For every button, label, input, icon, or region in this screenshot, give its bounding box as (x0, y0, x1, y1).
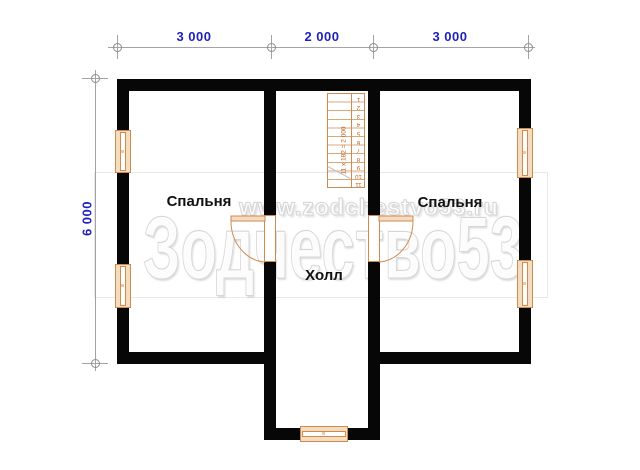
room-label-bedroom-right: Спальня (395, 194, 505, 211)
dimension-label-height: 6 000 (80, 179, 95, 259)
door-bedroom-right (369, 216, 414, 263)
left-dimension-line (95, 70, 96, 371)
axis-marker-circle (91, 359, 100, 368)
room-label-hall: Холл (274, 267, 374, 284)
top-dimension-line (108, 47, 535, 48)
door-frame (369, 216, 380, 262)
dimension-label-span3: 3 000 (420, 29, 480, 44)
dimension-label-span2: 2 000 (292, 29, 352, 44)
door-layer (0, 0, 640, 470)
axis-marker-circle (267, 43, 276, 52)
room-label-bedroom-left: Спальня (144, 193, 254, 210)
door-bedroom-left (231, 216, 276, 263)
axis-marker-circle (113, 43, 122, 52)
floor-plan-canvas: 3 000 2 000 3 000 6 000 www.zodchestvo53… (0, 0, 640, 470)
door-swing-arc (231, 221, 265, 262)
door-leaf (379, 216, 413, 221)
door-swing-arc (379, 221, 413, 262)
axis-marker-circle (524, 43, 533, 52)
door-leaf (231, 216, 265, 221)
axis-marker-circle (369, 43, 378, 52)
dimension-label-span1: 3 000 (164, 29, 224, 44)
axis-marker-circle (91, 74, 100, 83)
door-frame (265, 216, 276, 262)
